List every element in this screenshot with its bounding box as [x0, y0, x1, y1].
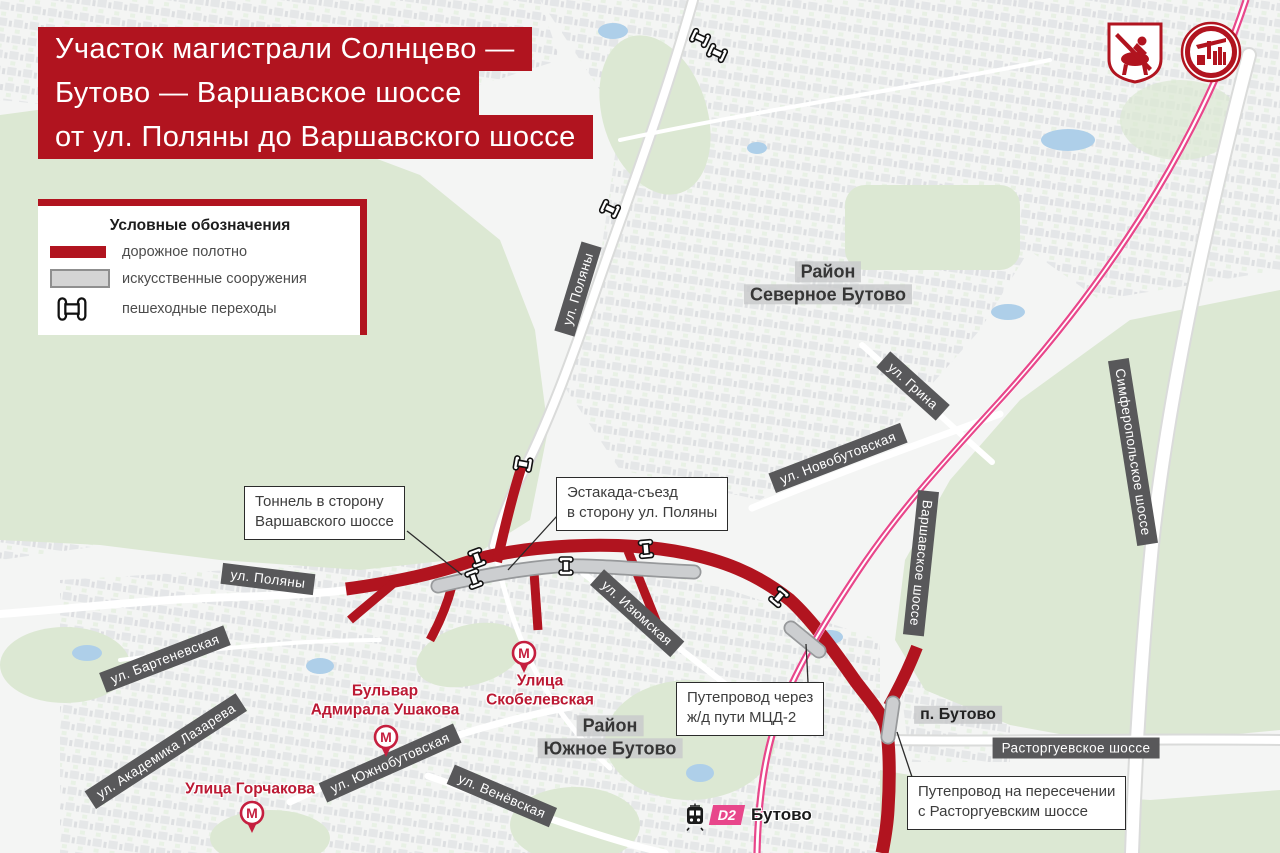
metro-label-line: Скобелевская	[486, 691, 594, 710]
callout-line: с Расторгуевским шоссе	[918, 802, 1115, 822]
callout-line: Тоннель в сторону	[255, 492, 394, 512]
metro-icon-gorchakova: М	[237, 799, 267, 835]
metro-label-gorchakova: Улица Горчакова	[185, 781, 315, 800]
metro-label-line: Улица	[486, 672, 594, 691]
callout-ramp: Эстакада-съезд в сторону ул. Поляны	[556, 477, 728, 531]
metro-label-line: Бульвар	[311, 682, 459, 701]
callout-line: Эстакада-съезд	[567, 483, 717, 503]
legend-road-label: дорожное полотно	[122, 244, 247, 260]
moscow-coat-of-arms-logo	[1106, 21, 1164, 90]
metro-icon-ushakova: М	[371, 723, 401, 759]
mcd-line-badge: D2	[709, 805, 745, 825]
ramp-center-stub	[534, 572, 538, 630]
legend-item-road: дорожное полотно	[50, 244, 350, 260]
train-icon	[683, 803, 707, 836]
rail-station-name: Бутово	[751, 805, 812, 825]
title-line-2: Бутово — Варшавское шоссе	[38, 71, 479, 115]
legend-item-pedestrian: пешеходные переходы	[50, 297, 350, 321]
district-line: Северное Бутово	[744, 284, 912, 305]
callout-tunnel: Тоннель в сторону Варшавского шоссе	[244, 486, 405, 540]
district-line: п. Бутово	[914, 706, 1002, 724]
settlement-label-p-butovo: п. Бутово	[914, 704, 1002, 726]
callout-line: в сторону ул. Поляны	[567, 503, 717, 523]
callout-line: Путепровод на пересечении	[918, 782, 1115, 802]
metro-letter: М	[246, 805, 258, 821]
title-line-1: Участок магистрали Солнцево —	[38, 27, 532, 71]
pedestrian-bridge-swatch-icon	[50, 297, 94, 321]
district-label-severnoye-butovo: Район Северное Бутово	[744, 259, 912, 306]
district-line: Район	[795, 261, 862, 282]
street-label-rastorguyevskoye: Расторгуевское шоссе	[993, 738, 1160, 759]
road-swatch	[50, 246, 106, 258]
infographic-map: Участок магистрали Солнцево — Бутово — В…	[0, 0, 1280, 853]
structure-swatch	[50, 269, 110, 288]
metro-letter: М	[380, 729, 392, 745]
callout-line: Варшавского шоссе	[255, 512, 394, 532]
stroy-complex-logo	[1180, 21, 1242, 88]
legend-header: Условные обозначения	[50, 217, 350, 235]
title-line-3: от ул. Поляны до Варшавского шоссе	[38, 115, 593, 159]
legend-item-structures: искусственные сооружения	[50, 269, 350, 288]
callout-overpass-mcd2: Путепровод через ж/д пути МЦД-2	[676, 682, 824, 736]
legend-structures-label: искусственные сооружения	[122, 271, 307, 287]
district-line: Южное Бутово	[538, 738, 683, 759]
metro-label-ushakova: Бульвар Адмирала Ушакова	[311, 682, 459, 719]
district-label-yuzhnoye-butovo: Район Южное Бутово	[538, 713, 683, 760]
legend: Условные обозначения дорожное полотно ис…	[38, 199, 367, 335]
page-title: Участок магистрали Солнцево — Бутово — В…	[38, 27, 593, 159]
callout-overpass-rastorguyevskoye: Путепровод на пересечении с Расторгуевск…	[907, 776, 1126, 830]
metro-icon-skobelevskaya: М	[509, 639, 539, 675]
metro-label-skobelevskaya: Улица Скобелевская	[486, 672, 594, 709]
callout-line: ж/д пути МЦД-2	[687, 708, 813, 728]
legend-pedestrian-label: пешеходные переходы	[122, 301, 277, 317]
metro-label-line: Адмирала Ушакова	[311, 701, 459, 720]
metro-letter: М	[518, 645, 530, 661]
district-line: Район	[577, 715, 644, 736]
metro-label-line: Улица Горчакова	[185, 781, 315, 800]
callout-line: Путепровод через	[687, 688, 813, 708]
